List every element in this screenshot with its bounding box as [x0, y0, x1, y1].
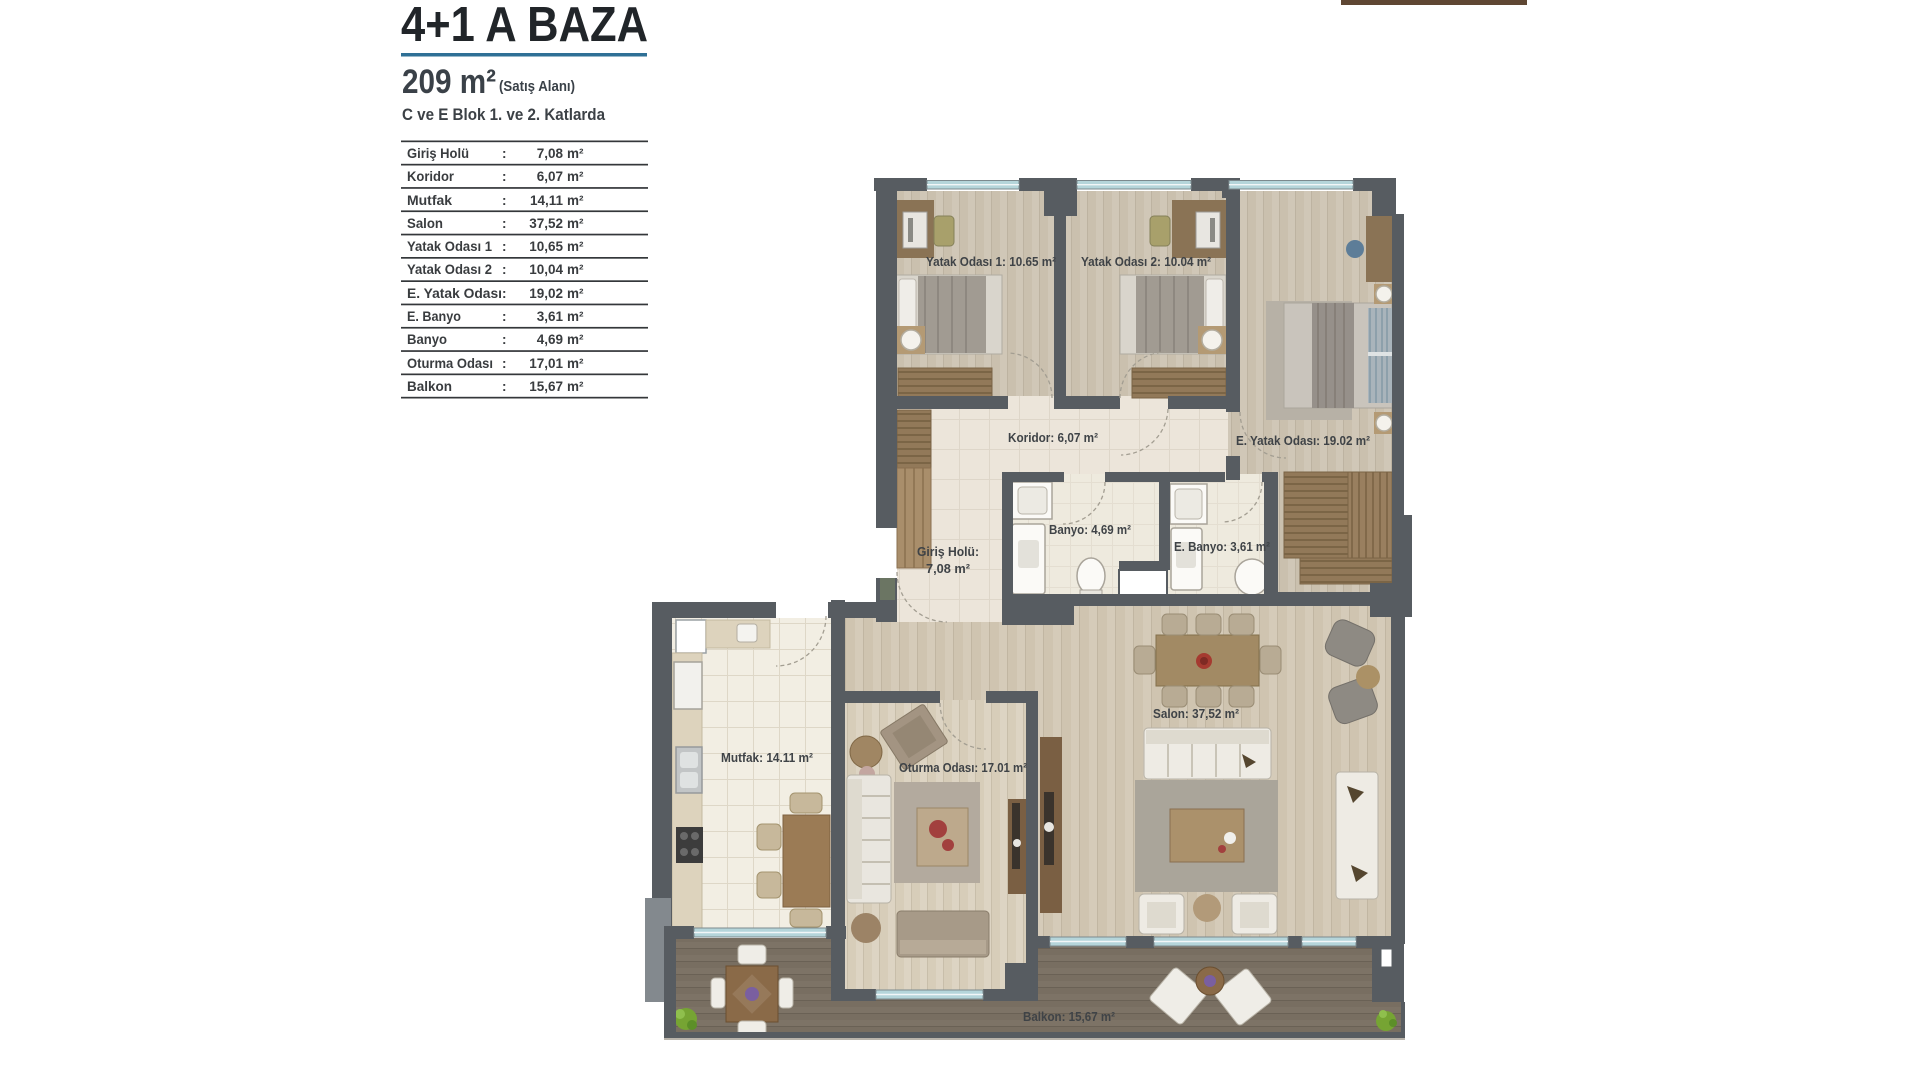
svg-text:Oturma Odası: 17.01 m²: Oturma Odası: 17.01 m²: [899, 760, 1028, 775]
svg-text:m²: m²: [567, 286, 584, 301]
svg-text:7,08 m²: 7,08 m²: [926, 561, 971, 576]
svg-text:Yatak Odası 1: 10.65 m²: Yatak Odası 1: 10.65 m²: [926, 254, 1057, 269]
svg-text:(Satış Alanı): (Satış Alanı): [499, 78, 575, 95]
svg-text:Koridor: Koridor: [407, 169, 455, 184]
svg-text:15,67: 15,67: [529, 379, 563, 394]
svg-text:E. Banyo: 3,61 m²: E. Banyo: 3,61 m²: [1174, 539, 1271, 554]
svg-text:Salon: Salon: [407, 216, 443, 231]
svg-text:Banyo: 4,69 m²: Banyo: 4,69 m²: [1049, 522, 1132, 537]
svg-text:Yatak Odası 2: 10.04 m²: Yatak Odası 2: 10.04 m²: [1081, 254, 1212, 269]
svg-text:Oturma Odası: Oturma Odası: [407, 356, 493, 371]
svg-text:4,69: 4,69: [537, 332, 563, 347]
svg-text:m²: m²: [567, 146, 584, 161]
svg-text:m²: m²: [567, 193, 584, 208]
svg-text:Balkon: 15,67 m²: Balkon: 15,67 m²: [1023, 1009, 1116, 1024]
svg-text::: :: [502, 332, 507, 347]
svg-text:m²: m²: [567, 356, 584, 371]
svg-text::: :: [502, 262, 507, 277]
svg-text:m²: m²: [567, 332, 584, 347]
svg-text:3,61: 3,61: [537, 309, 564, 324]
svg-text:m²: m²: [567, 216, 584, 231]
svg-text:Balkon: Balkon: [407, 379, 452, 394]
svg-text:4+1 A BAZA: 4+1 A BAZA: [401, 0, 648, 52]
svg-text:Banyo: Banyo: [407, 332, 447, 347]
svg-text::: :: [502, 286, 507, 301]
svg-text::: :: [502, 169, 507, 184]
svg-text:17,01: 17,01: [529, 356, 563, 371]
svg-text:Yatak Odası 2: Yatak Odası 2: [407, 262, 492, 277]
svg-text:E. Yatak Odası: 19.02 m²: E. Yatak Odası: 19.02 m²: [1236, 433, 1371, 448]
svg-text::: :: [502, 309, 507, 324]
svg-text:m²: m²: [567, 239, 584, 254]
svg-text:10,65: 10,65: [529, 239, 563, 254]
svg-text:m²: m²: [567, 262, 584, 277]
svg-text::: :: [502, 216, 507, 231]
svg-text:Mutfak: Mutfak: [407, 193, 453, 208]
svg-text:m²: m²: [567, 169, 584, 184]
svg-text:10,04: 10,04: [529, 262, 563, 277]
svg-text::: :: [502, 193, 507, 208]
svg-text:m²: m²: [567, 309, 584, 324]
svg-text:Giriş Holü: Giriş Holü: [407, 146, 469, 161]
svg-text:Mutfak: 14.11 m²: Mutfak: 14.11 m²: [721, 750, 814, 765]
svg-text:37,52: 37,52: [529, 216, 563, 231]
svg-text:6,07: 6,07: [537, 169, 563, 184]
svg-text::: :: [502, 356, 507, 371]
svg-text:14,11: 14,11: [530, 193, 564, 208]
svg-text:19,02: 19,02: [529, 286, 563, 301]
svg-text:Salon: 37,52 m²: Salon: 37,52 m²: [1153, 706, 1240, 721]
svg-text:Giriş Holü:: Giriş Holü:: [917, 544, 979, 559]
svg-text:m²: m²: [567, 379, 584, 394]
svg-text:E. Yatak Odası: E. Yatak Odası: [407, 286, 502, 301]
svg-text:7,08: 7,08: [537, 146, 564, 161]
svg-text:Yatak Odası 1: Yatak Odası 1: [407, 239, 492, 254]
svg-text:Koridor: 6,07 m²: Koridor: 6,07 m²: [1008, 430, 1099, 445]
svg-text:E. Banyo: E. Banyo: [407, 309, 461, 324]
svg-text::: :: [502, 239, 507, 254]
svg-text::: :: [502, 379, 507, 394]
svg-text:209 m²: 209 m²: [402, 63, 496, 101]
svg-text::: :: [502, 146, 507, 161]
svg-text:C ve E Blok 1. ve 2. Katlarda: C ve E Blok 1. ve 2. Katlarda: [402, 105, 605, 124]
